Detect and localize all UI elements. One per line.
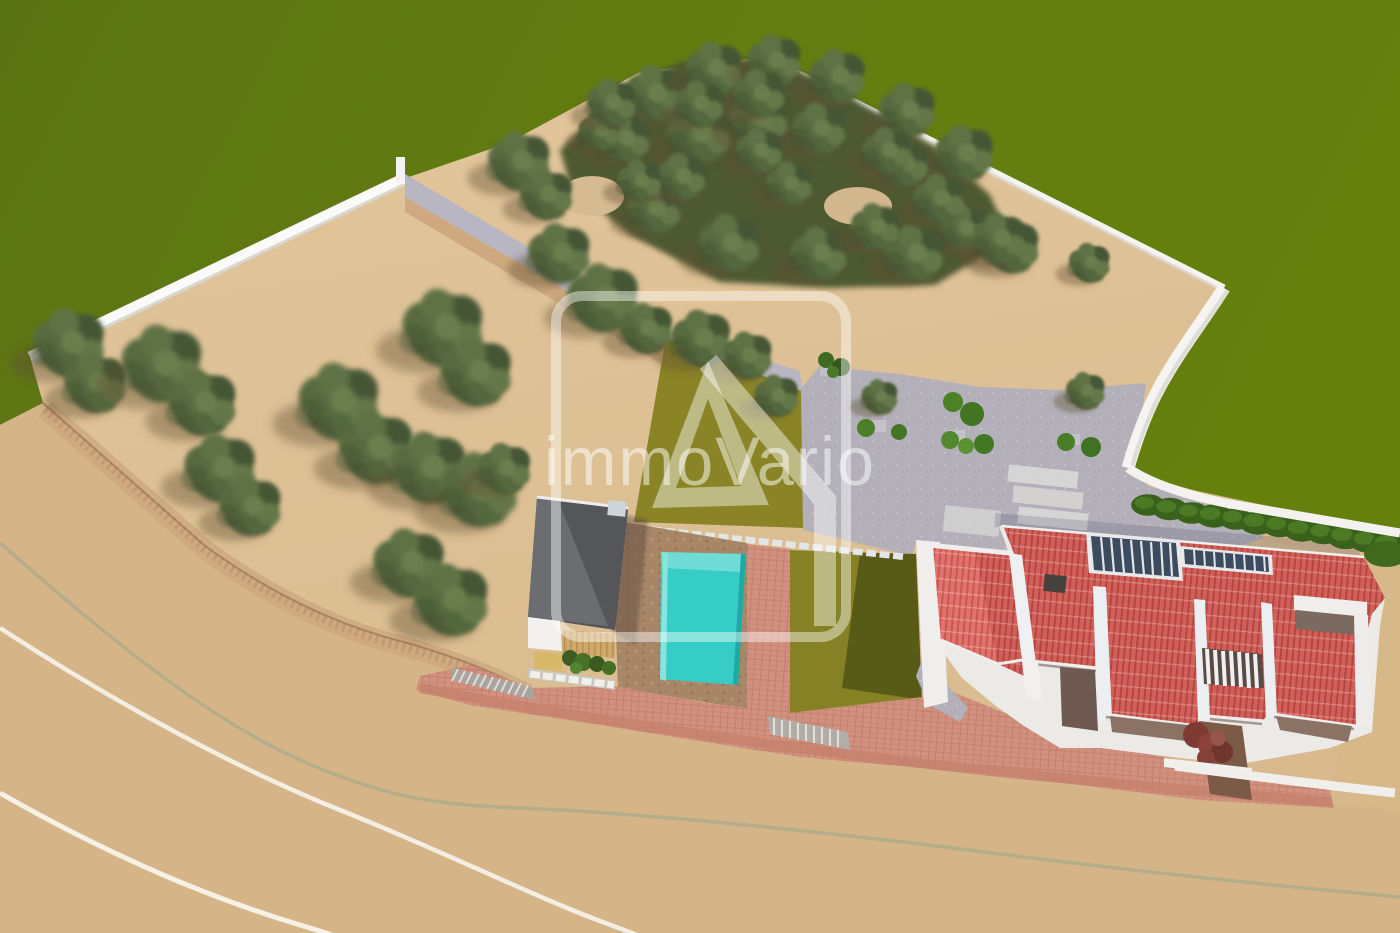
svg-text:immoVario: immoVario	[544, 423, 876, 500]
